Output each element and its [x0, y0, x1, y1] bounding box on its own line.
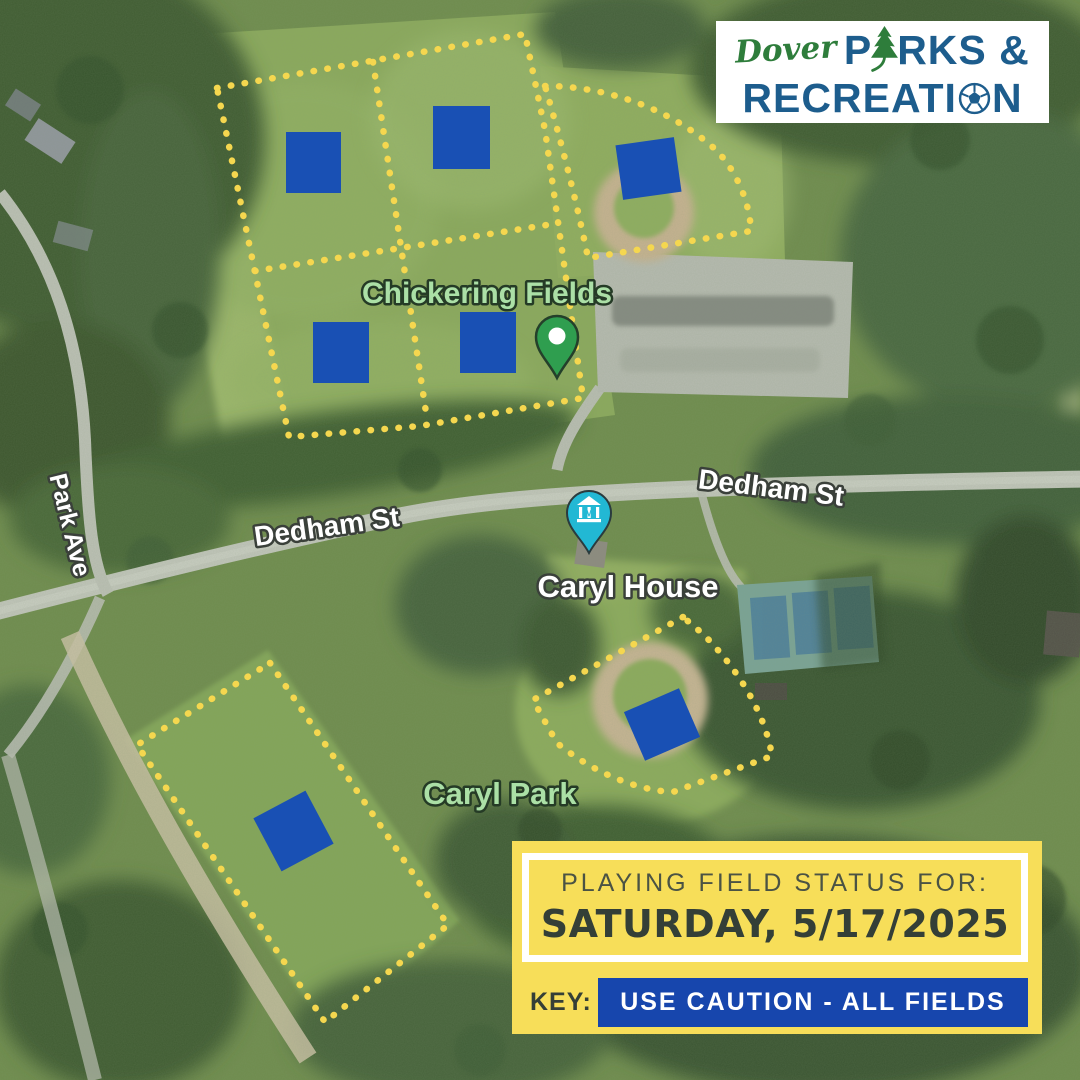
logo-parks-rest: RKS & [897, 30, 1030, 71]
label-caryl-park: Caryl Park [423, 776, 577, 811]
flyer-canvas: M Chickering Fields Dedham St Dedham St … [0, 0, 1080, 1080]
label-chickering-fields: Chickering Fields [362, 277, 612, 310]
logo-parks-p: P [844, 30, 872, 71]
label-caryl-house: Caryl House [538, 569, 719, 604]
logo-line-1: Dover P RKS & [735, 26, 1030, 76]
field-status-panel: PLAYING FIELD STATUS FOR: SATURDAY, 5/17… [512, 841, 1042, 1034]
logo-recreation-post: N [992, 78, 1023, 119]
key-status-badge: USE CAUTION - ALL FIELDS [598, 978, 1028, 1027]
key-label: KEY: [530, 988, 592, 1017]
status-date-box: PLAYING FIELD STATUS FOR: SATURDAY, 5/17… [522, 853, 1028, 962]
logo-line-2: RECREATI N [742, 78, 1022, 119]
parks-rec-logo: Dover P RKS & RECREATI N [716, 21, 1049, 123]
field-status-marker [433, 106, 490, 169]
status-date: SATURDAY, 5/17/2025 [541, 902, 1009, 946]
logo-recreation-pre: RECREATI [742, 78, 957, 119]
field-status-marker [460, 312, 516, 373]
status-title: PLAYING FIELD STATUS FOR: [561, 869, 989, 898]
field-status-marker [615, 137, 681, 200]
pine-tree-icon [871, 26, 898, 72]
status-key-row: KEY: USE CAUTION - ALL FIELDS [530, 978, 1028, 1027]
logo-dover-script: Dover [734, 32, 837, 68]
soccer-ball-icon [958, 82, 991, 115]
field-status-marker [313, 322, 369, 383]
field-status-marker [286, 132, 341, 193]
museum-pin-glyph: M [585, 509, 593, 519]
